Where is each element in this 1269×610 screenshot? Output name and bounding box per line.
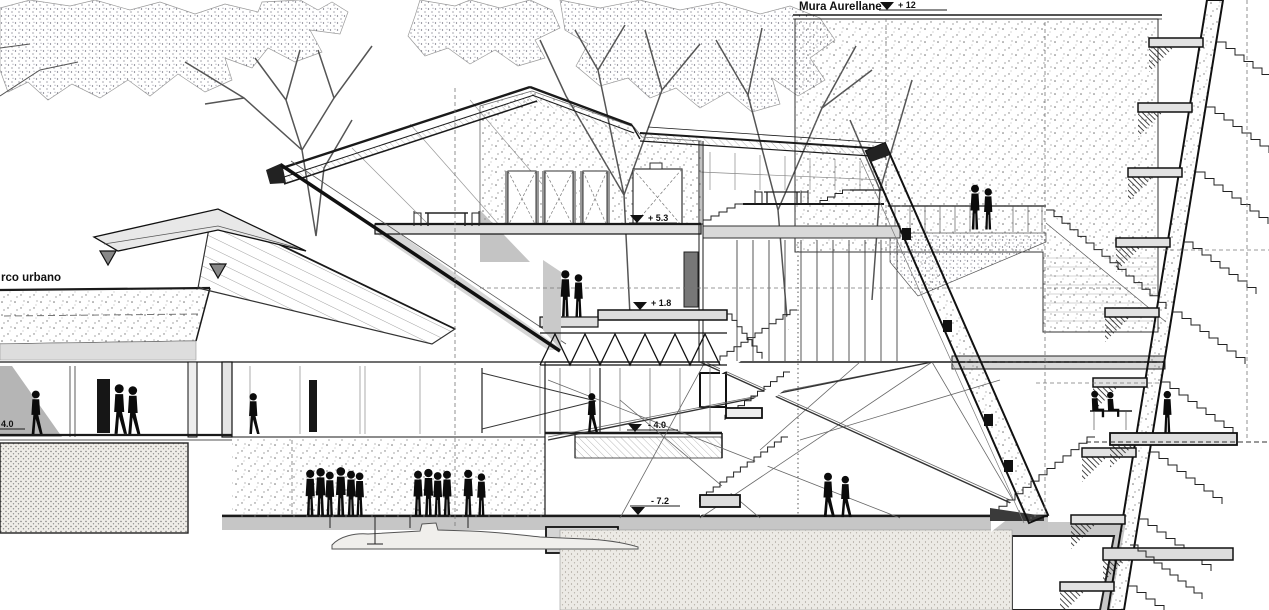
slab-edge-hatch: [575, 437, 722, 458]
corridor-wall: [188, 362, 197, 437]
corridor-glazing: [70, 366, 75, 437]
elevation-value: + 1.8: [651, 298, 671, 308]
elevation-value: 4.0: [1, 419, 14, 429]
people-pair-walking: [824, 473, 852, 517]
corridor-wall: [222, 362, 232, 437]
great-hall: [545, 310, 1165, 532]
tree-canopy: [0, 0, 348, 100]
triangular-brace: [482, 368, 600, 433]
person-walking: [249, 393, 260, 434]
architectural-section-sheet: Mura Aurellane rco urbano + 12 + 5.3 + 1…: [0, 0, 1269, 610]
people-pair-walking: [114, 384, 140, 434]
glazing-header: [703, 226, 900, 238]
bench: [726, 408, 762, 418]
tree-canopy: [560, 0, 835, 112]
facade-foot-shadow: [543, 260, 561, 350]
wall-opening: [700, 373, 726, 407]
people-pair-terrace: [561, 270, 583, 317]
door-dark: [97, 379, 110, 433]
elevation-value: - 4.0: [648, 420, 666, 430]
elevation-marker-excavation: - 7.2: [630, 496, 680, 515]
bench: [700, 495, 740, 507]
mezzanine-slab: [375, 224, 701, 234]
elevation-value: + 12: [898, 0, 916, 10]
canopy-tip-marker: [100, 251, 116, 265]
interior-door: [684, 252, 698, 307]
stair-to-platform: [695, 204, 743, 228]
section-drawing: Mura Aurellane rco urbano + 12 + 5.3 + 1…: [0, 0, 1269, 610]
elevation-marker-terrace: + 1.8: [632, 298, 680, 310]
wall-name-label: Mura Aurellane: [799, 1, 882, 13]
elevation-value: + 5.3: [648, 213, 668, 223]
aurelian-wall: [793, 15, 1162, 332]
person-standing: [1163, 391, 1171, 433]
tree-canopy: [408, 0, 560, 66]
left-foundation-mass: [0, 443, 188, 533]
lower-glazing: [560, 368, 710, 431]
terrace-slab: [598, 310, 727, 320]
bridge-slab: [1110, 433, 1237, 445]
park-name-label: rco urbano: [1, 272, 61, 284]
elevation-value: - 7.2: [651, 496, 669, 506]
door-dark: [309, 380, 317, 432]
left-block: [0, 209, 545, 440]
elevation-marker-wall-top: + 12: [879, 0, 947, 10]
bridge-slab: [1103, 548, 1233, 560]
lower-wall-panel: [232, 439, 545, 517]
foundation-mass: [560, 530, 1012, 610]
